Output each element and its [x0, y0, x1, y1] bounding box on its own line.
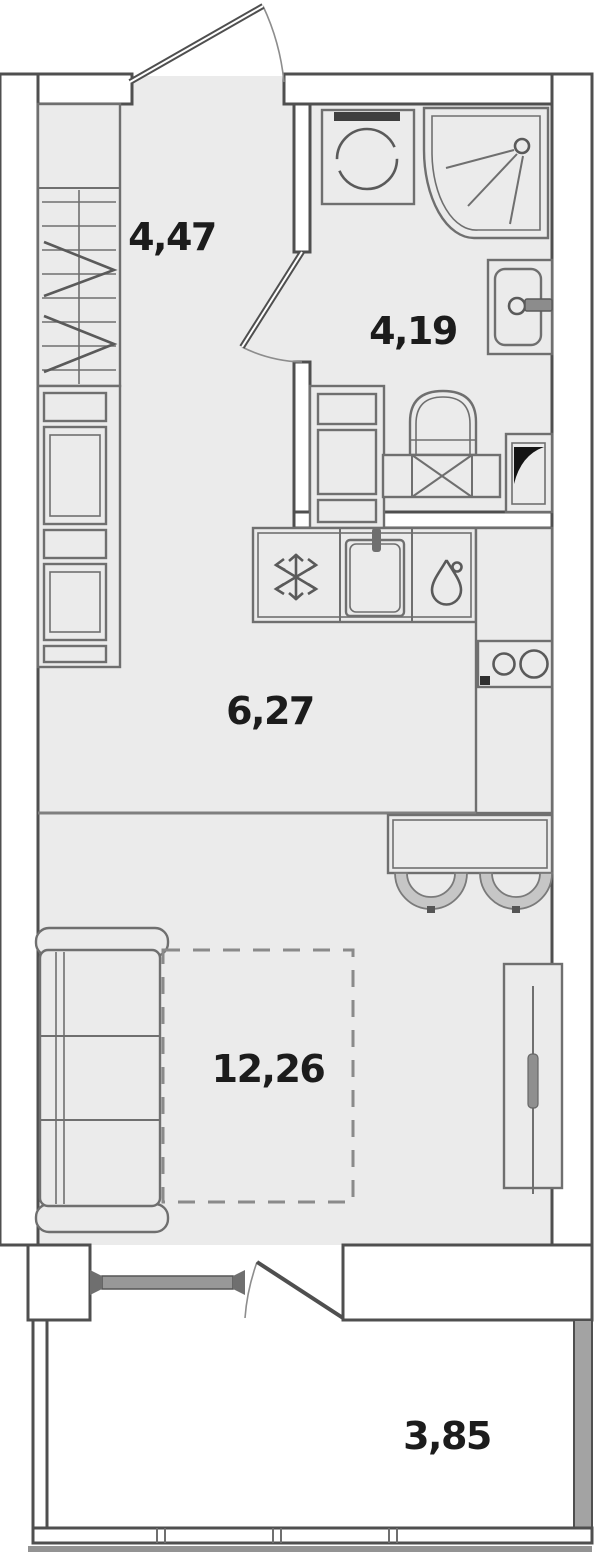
hob-two-burners: [478, 641, 552, 687]
wall-bottom-right-pier: [343, 1245, 592, 1320]
corner-shower: [424, 108, 548, 238]
washbasin: [488, 260, 552, 354]
wardrobe: [38, 104, 120, 386]
washing-machine: [322, 110, 414, 204]
wardrobe-handle: [528, 1054, 538, 1108]
entrance-door-arc: [263, 6, 284, 82]
wall-top-right: [284, 74, 592, 104]
balcony-glazing: [33, 1528, 592, 1543]
kitchen-sink: [346, 528, 404, 616]
bar-table: [388, 815, 552, 873]
wall-bathroom-left-lower: [294, 362, 310, 512]
window: [90, 1270, 245, 1295]
wall-bathroom-left-upper: [294, 104, 310, 252]
room-label-hallway: 4,47: [128, 215, 216, 259]
sliding-wardrobe: [504, 964, 562, 1194]
balcony-door-leaf: [257, 1262, 343, 1318]
entrance-door: [130, 6, 284, 82]
kitchen-cabinets: [38, 386, 120, 667]
balcony: [28, 1320, 592, 1552]
wall-left: [0, 74, 38, 1245]
wall-bottom-left-pier: [28, 1245, 90, 1320]
floor-plan-svg: 4,47 4,19 6,27 12,26 3,85: [0, 0, 600, 1552]
floor-plan: 4,47 4,19 6,27 12,26 3,85: [0, 0, 600, 1552]
balcony-wall-right: [574, 1320, 592, 1543]
room-label-bathroom: 4,19: [369, 309, 457, 353]
sofa: [36, 928, 168, 1232]
ground-line: [28, 1546, 592, 1552]
balcony-door: [245, 1262, 343, 1318]
faucet: [372, 528, 381, 552]
room-label-kitchen: 6,27: [226, 689, 314, 733]
ventilation-shaft: [506, 434, 552, 512]
balcony-wall-left: [33, 1320, 47, 1543]
balcony-door-arc: [245, 1262, 257, 1318]
room-label-balcony: 3,85: [403, 1414, 491, 1458]
room-label-living-room: 12,26: [212, 1047, 325, 1091]
bathroom-cabinet: [310, 386, 384, 528]
